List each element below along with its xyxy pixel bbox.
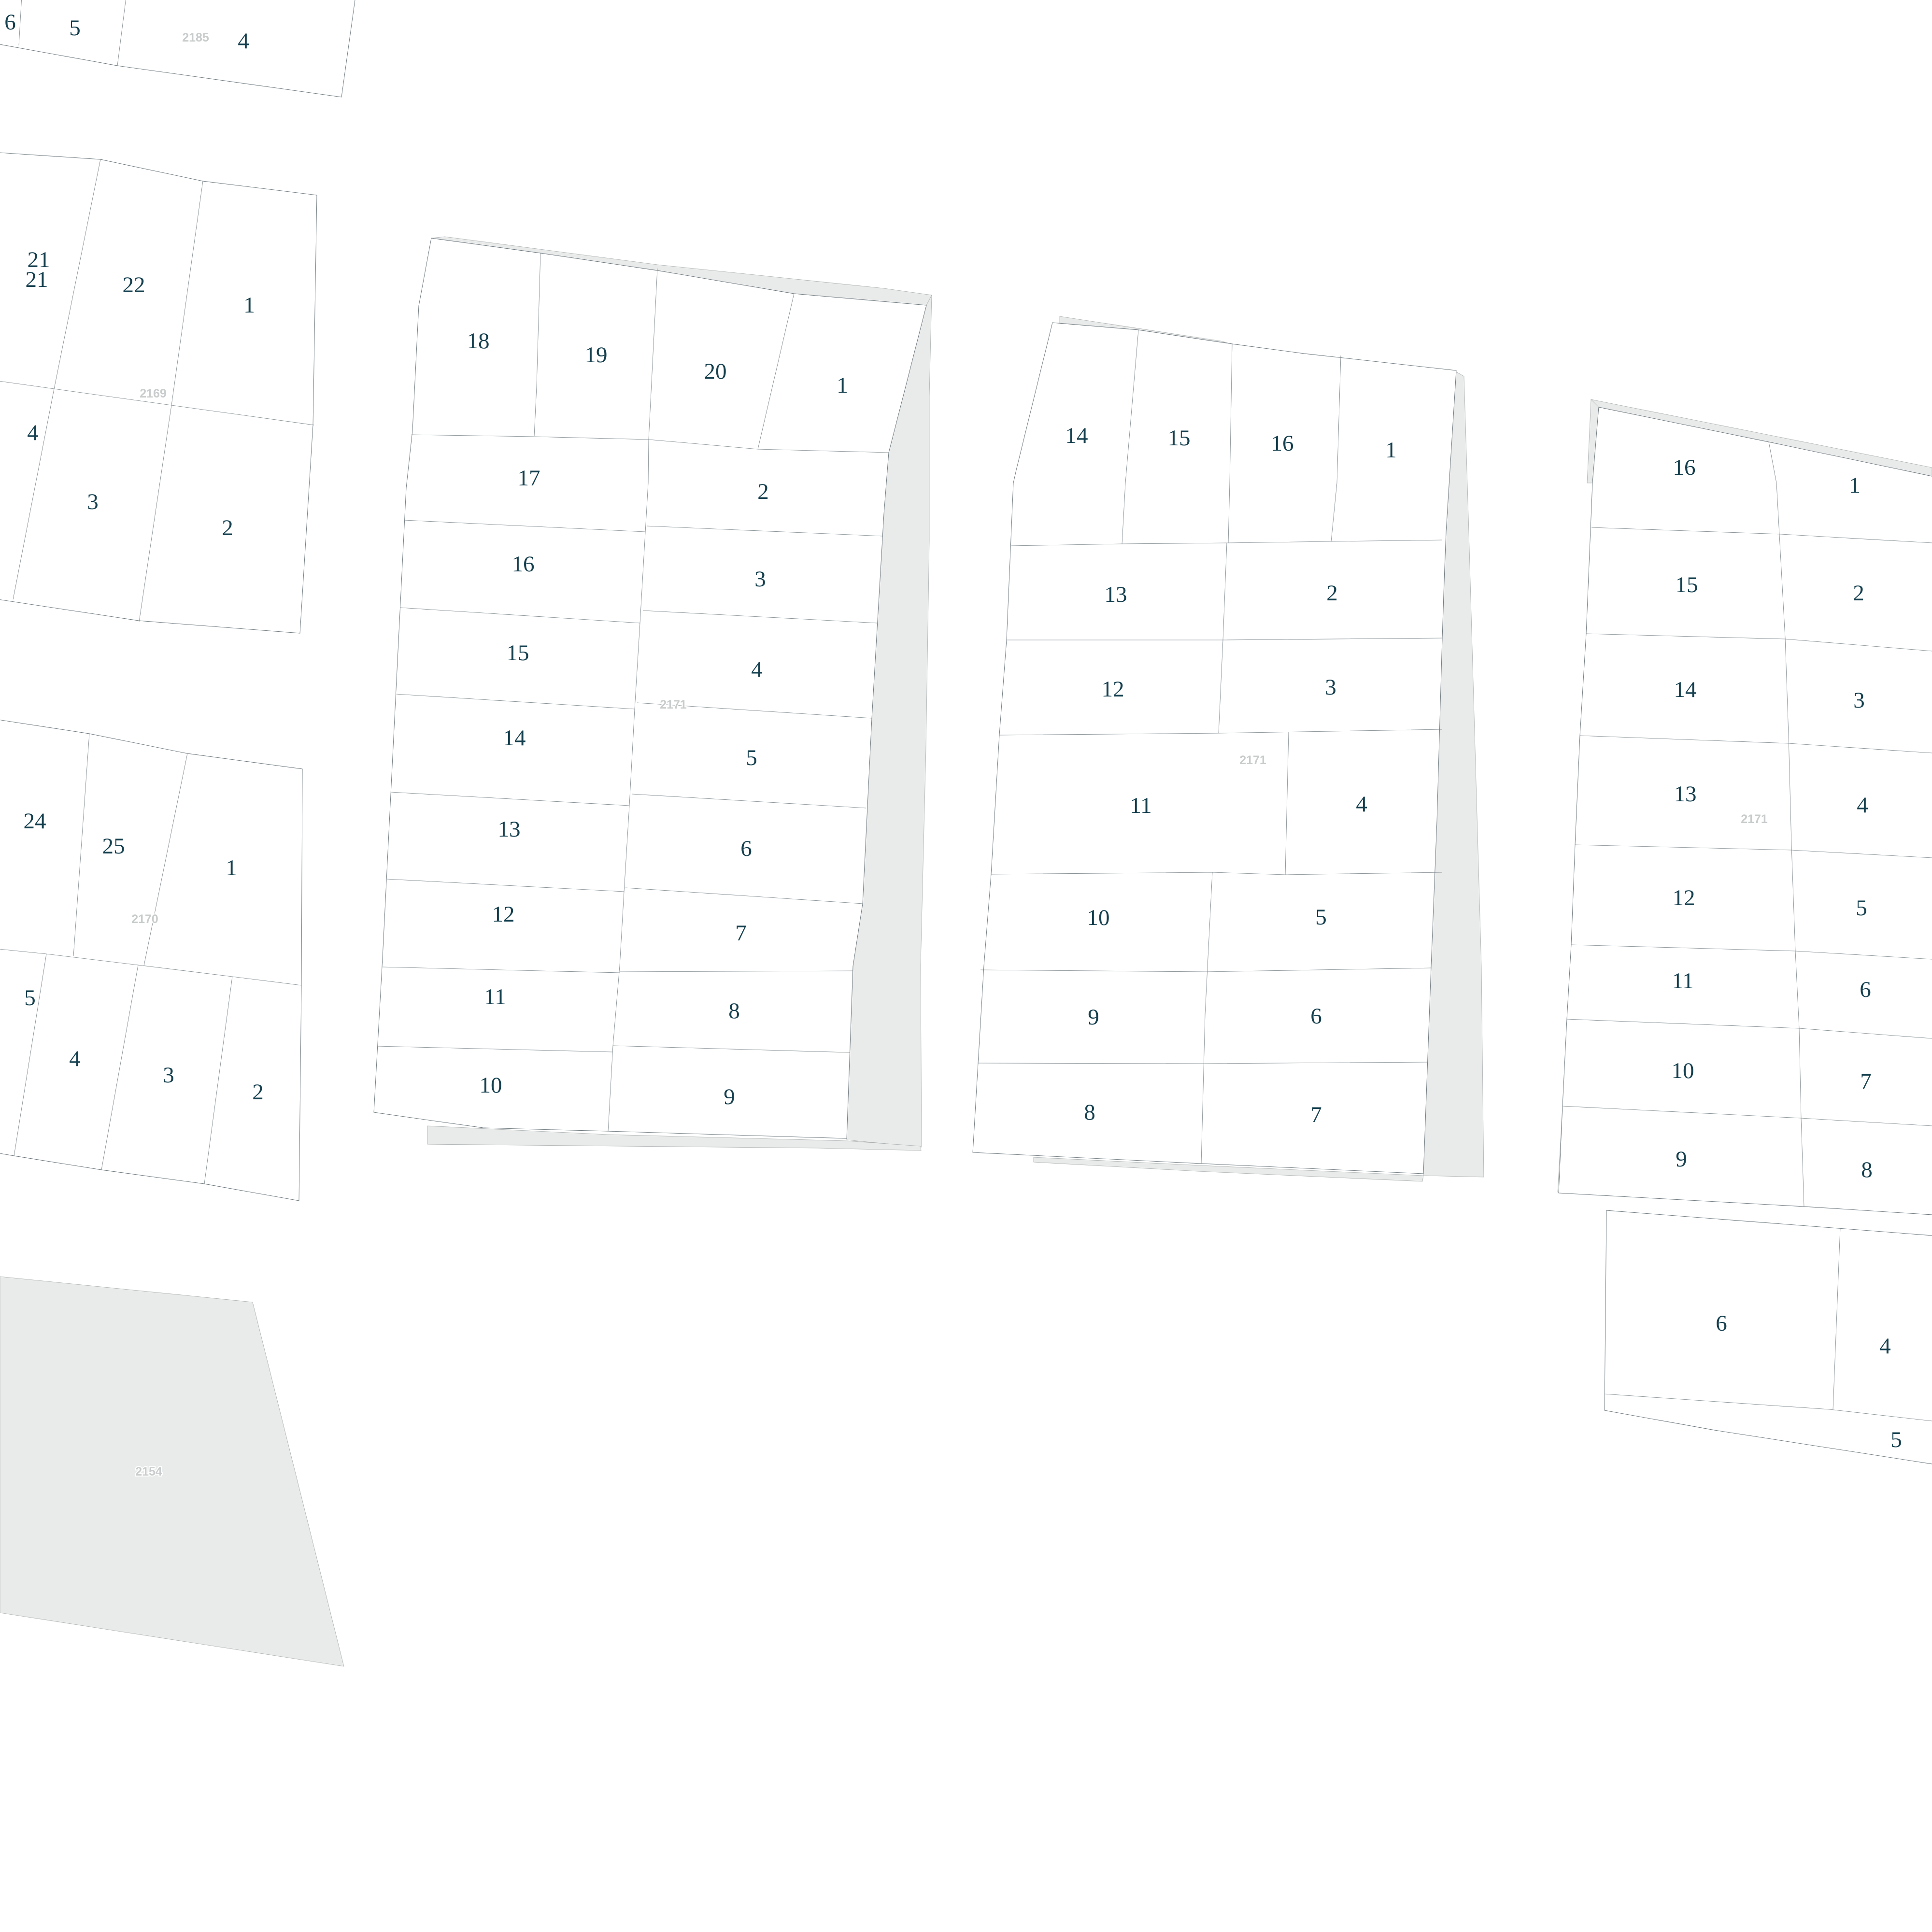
svg-text:14: 14 [1674, 677, 1697, 702]
svg-text:15: 15 [1676, 572, 1698, 597]
svg-text:14: 14 [503, 725, 526, 751]
svg-text:1: 1 [1385, 438, 1397, 463]
svg-text:3: 3 [754, 567, 766, 592]
svg-text:2185: 2185 [182, 31, 209, 44]
svg-text:10: 10 [1087, 905, 1110, 930]
svg-text:16: 16 [1271, 431, 1294, 456]
svg-text:7: 7 [1310, 1102, 1322, 1127]
svg-text:1: 1 [1849, 473, 1861, 498]
svg-text:5: 5 [1890, 1427, 1902, 1452]
svg-text:13: 13 [1105, 582, 1127, 607]
svg-text:16: 16 [512, 552, 535, 577]
svg-text:13: 13 [1674, 781, 1697, 807]
svg-text:2: 2 [1326, 581, 1338, 606]
svg-text:6: 6 [1860, 977, 1871, 1002]
svg-text:6: 6 [1310, 1004, 1322, 1029]
svg-text:4: 4 [1857, 793, 1868, 818]
svg-text:11: 11 [1130, 793, 1151, 818]
svg-text:5: 5 [1856, 895, 1867, 921]
svg-text:4: 4 [751, 657, 763, 682]
svg-text:6: 6 [1716, 1311, 1727, 1336]
svg-text:5: 5 [1315, 905, 1327, 930]
svg-text:2: 2 [252, 1080, 264, 1105]
svg-text:6: 6 [4, 10, 16, 35]
svg-text:1: 1 [243, 293, 255, 318]
svg-text:2171: 2171 [1741, 812, 1768, 826]
svg-text:9: 9 [1088, 1005, 1099, 1030]
svg-text:2: 2 [222, 515, 233, 540]
svg-text:11: 11 [1672, 968, 1693, 994]
svg-text:1: 1 [226, 855, 237, 881]
svg-text:7: 7 [735, 921, 747, 946]
svg-text:3: 3 [87, 489, 99, 514]
svg-text:25: 25 [102, 834, 125, 859]
svg-text:13: 13 [498, 817, 521, 842]
svg-text:4: 4 [238, 28, 249, 54]
svg-text:20: 20 [704, 359, 727, 384]
svg-text:2: 2 [757, 479, 769, 504]
svg-text:5: 5 [746, 745, 757, 770]
svg-text:16: 16 [1673, 455, 1696, 480]
svg-text:7: 7 [1860, 1069, 1872, 1094]
svg-text:21: 21 [26, 267, 48, 292]
svg-text:8: 8 [728, 998, 740, 1023]
svg-text:10: 10 [480, 1073, 502, 1098]
svg-text:3: 3 [1853, 688, 1865, 713]
svg-text:24: 24 [24, 809, 46, 834]
svg-text:2154: 2154 [135, 1465, 162, 1478]
svg-text:9: 9 [1676, 1147, 1687, 1172]
svg-text:10: 10 [1672, 1058, 1694, 1083]
svg-text:8: 8 [1084, 1100, 1095, 1125]
svg-text:22: 22 [123, 272, 145, 298]
svg-text:18: 18 [467, 328, 490, 354]
svg-text:5: 5 [69, 15, 81, 41]
svg-text:11: 11 [484, 984, 506, 1009]
svg-text:2171: 2171 [660, 698, 687, 711]
svg-text:4: 4 [69, 1046, 81, 1071]
svg-text:4: 4 [1356, 792, 1367, 817]
svg-text:4: 4 [1879, 1334, 1891, 1359]
svg-text:14: 14 [1065, 423, 1088, 448]
svg-text:5: 5 [24, 985, 36, 1010]
svg-text:3: 3 [1325, 675, 1336, 700]
svg-text:15: 15 [1168, 426, 1191, 451]
svg-text:3: 3 [163, 1063, 174, 1088]
svg-text:2169: 2169 [140, 387, 167, 400]
svg-text:9: 9 [724, 1084, 735, 1109]
svg-text:12: 12 [492, 902, 515, 927]
svg-text:2170: 2170 [131, 912, 158, 926]
svg-text:1: 1 [837, 373, 848, 398]
svg-text:19: 19 [585, 342, 608, 368]
svg-text:2: 2 [1853, 581, 1864, 606]
svg-text:15: 15 [507, 640, 529, 666]
svg-text:12: 12 [1673, 885, 1695, 910]
svg-text:4: 4 [27, 420, 39, 445]
svg-text:6: 6 [740, 836, 752, 861]
svg-text:17: 17 [518, 466, 540, 491]
svg-text:8: 8 [1861, 1157, 1873, 1182]
svg-text:12: 12 [1102, 677, 1124, 702]
svg-text:2171: 2171 [1239, 753, 1266, 767]
